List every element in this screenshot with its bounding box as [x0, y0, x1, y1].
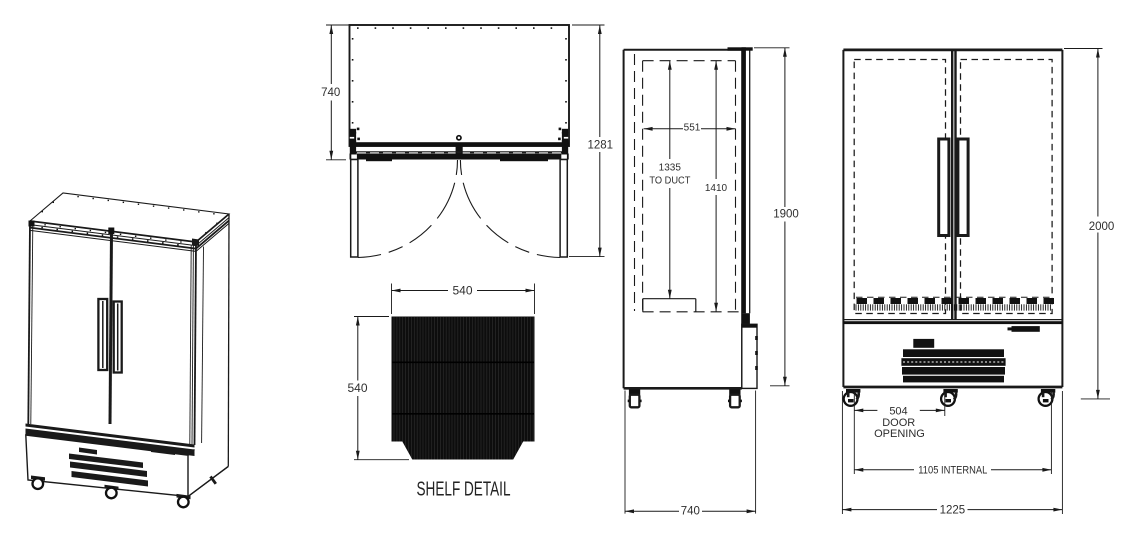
svg-text:1281: 1281 — [588, 139, 614, 151]
svg-text:740: 740 — [321, 87, 340, 99]
svg-text:1105 INTERNAL: 1105 INTERNAL — [918, 465, 987, 477]
svg-text:OPENING: OPENING — [874, 428, 925, 440]
svg-text:551: 551 — [684, 123, 701, 134]
svg-text:540: 540 — [452, 284, 472, 298]
svg-text:1335: 1335 — [659, 163, 682, 174]
svg-text:TO DUCT: TO DUCT — [649, 176, 690, 187]
svg-text:1900: 1900 — [773, 209, 799, 221]
svg-text:SHELF DETAIL: SHELF DETAIL — [417, 478, 511, 501]
svg-text:740: 740 — [681, 506, 700, 518]
svg-text:1225: 1225 — [940, 505, 966, 517]
svg-text:2000: 2000 — [1089, 221, 1115, 233]
svg-text:504: 504 — [889, 406, 907, 418]
svg-text:DOOR: DOOR — [882, 417, 915, 429]
svg-text:1410: 1410 — [705, 183, 728, 194]
svg-text:540: 540 — [347, 381, 367, 395]
